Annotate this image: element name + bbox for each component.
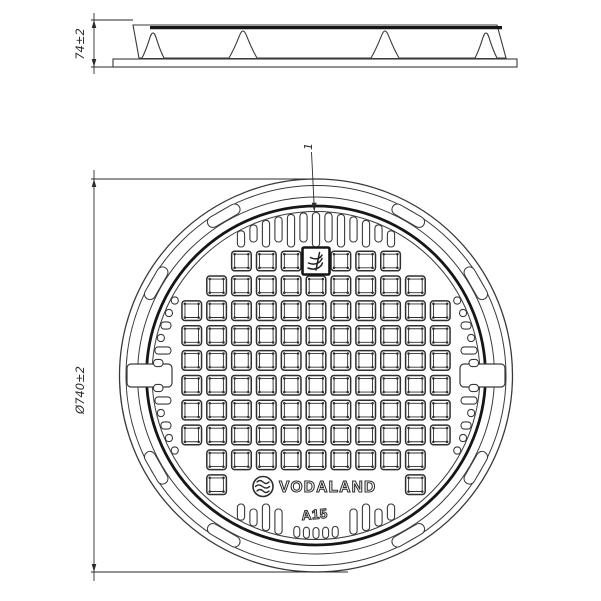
tread-cell [207, 425, 227, 445]
vent-slot-right [461, 347, 477, 354]
tread-cell [207, 450, 227, 470]
tread-cell [306, 326, 326, 346]
tread-cell [331, 425, 351, 445]
vent-slot-top [337, 214, 344, 247]
tread-cell [356, 276, 376, 296]
tread-cell [232, 375, 252, 395]
vent-nub-bottom [332, 526, 338, 537]
tread-cell [331, 375, 351, 395]
tread-cell [182, 400, 202, 420]
tread-cell [406, 326, 426, 346]
vent-slot-left [157, 409, 164, 416]
tread-cell [232, 251, 252, 271]
vent-slot-bottom [362, 504, 369, 531]
tread-cell [281, 375, 301, 395]
tread-cell [257, 375, 277, 395]
tread-cell [281, 301, 301, 321]
tread-cell [207, 375, 227, 395]
pry-notch-right [460, 364, 505, 387]
tread-cell [232, 425, 252, 445]
vent-slot-right [454, 297, 461, 304]
side-elevation-view [113, 25, 517, 67]
tread-cell [406, 375, 426, 395]
tread-cell [430, 351, 450, 371]
tread-cell [406, 425, 426, 445]
tread-cell [381, 375, 401, 395]
vent-slot-top [350, 217, 357, 242]
vent-slot-left [165, 309, 172, 316]
vent-slot-bottom [387, 504, 394, 520]
tread-cell [306, 276, 326, 296]
tread-cell [306, 450, 326, 470]
vent-slot-right [454, 447, 461, 454]
tread-cell [182, 375, 202, 395]
vent-nub-bottom [294, 526, 300, 537]
vent-slot-top [262, 220, 269, 247]
tread-cell [207, 400, 227, 420]
vent-slot-right [468, 334, 475, 341]
tread-cell [257, 301, 277, 321]
vent-slot-top [300, 213, 307, 242]
tread-cell [207, 276, 227, 296]
callout-1-label: 1 [302, 143, 315, 150]
tread-cell [257, 400, 277, 420]
tread-cell [406, 301, 426, 321]
tread-cell [281, 400, 301, 420]
vent-slot-bottom [237, 504, 244, 520]
vent-slot-left [155, 397, 171, 404]
tread-cell [207, 301, 227, 321]
vent-slot-left [155, 347, 171, 354]
tread-cell [331, 400, 351, 420]
tread-cell [257, 326, 277, 346]
tread-cell [207, 351, 227, 371]
tread-cell [207, 475, 227, 495]
vent-slot-left [171, 447, 178, 454]
tread-cell [306, 301, 326, 321]
tread-cell [356, 375, 376, 395]
tread-cell [430, 400, 450, 420]
tread-cell [257, 251, 277, 271]
tread-cell [306, 375, 326, 395]
tread-cell [331, 351, 351, 371]
vent-slot-bottom [350, 509, 357, 534]
vent-slot-top [250, 225, 257, 242]
tread-cell [331, 301, 351, 321]
frame-profile [113, 25, 517, 67]
tread-cell [430, 375, 450, 395]
vent-slot-right [469, 384, 479, 391]
tread-cell [232, 326, 252, 346]
certification-emblem [303, 248, 330, 275]
tread-cell [331, 276, 351, 296]
tread-cell [381, 450, 401, 470]
tread-cell [356, 251, 376, 271]
tread-cell [207, 326, 227, 346]
tread-cell [306, 351, 326, 371]
tread-cell [406, 351, 426, 371]
tread-cell [356, 400, 376, 420]
tread-cell [381, 301, 401, 321]
frame-body [133, 25, 506, 58]
tread-cell [281, 251, 301, 271]
vent-slot-right [461, 397, 477, 404]
tread-cell [406, 276, 426, 296]
frame-flange [113, 59, 517, 67]
vodaland-logo-icon [253, 477, 273, 497]
vent-nub-bottom [323, 527, 329, 538]
vent-slot-right [460, 434, 467, 441]
tread-cell [406, 475, 426, 495]
tread-cell [356, 351, 376, 371]
tread-cell [356, 326, 376, 346]
vent-slot-top [275, 217, 282, 242]
vent-slot-top [312, 213, 319, 248]
vent-slot-right [460, 309, 467, 316]
vent-slot-left [153, 384, 163, 391]
tread-cell [306, 425, 326, 445]
tread-cell [406, 400, 426, 420]
tread-cell [381, 326, 401, 346]
tread-cell [232, 276, 252, 296]
tread-cell [232, 450, 252, 470]
callout-1: 1 [302, 143, 317, 212]
height-dimension-label: 74±2 [73, 28, 87, 60]
tread-cell [182, 301, 202, 321]
vent-nub-bottom [303, 527, 309, 538]
pry-notch-left [127, 364, 172, 387]
vent-slot-top [287, 214, 294, 247]
tread-cell [381, 251, 401, 271]
tread-cell [281, 450, 301, 470]
vent-slot-top [362, 220, 369, 247]
load-class-label: A15 [301, 506, 328, 523]
tread-cell [281, 276, 301, 296]
vent-slot-left [165, 434, 172, 441]
vent-nub-bottom [313, 528, 319, 539]
tread-cell [182, 326, 202, 346]
tread-cell [430, 425, 450, 445]
tread-cell [331, 326, 351, 346]
vent-slot-top [387, 231, 394, 247]
vent-slot-top [325, 213, 332, 242]
tread-cell [257, 450, 277, 470]
vent-slot-left [153, 359, 163, 366]
tread-cell [381, 276, 401, 296]
vent-slot-left [157, 334, 164, 341]
vent-slot-left [161, 422, 171, 429]
tread-cell [232, 400, 252, 420]
tread-grid [182, 251, 450, 494]
vent-slot-bottom [375, 509, 382, 526]
tread-cell [331, 450, 351, 470]
tread-cell [281, 351, 301, 371]
vent-slot-right [469, 359, 479, 366]
tread-cell [356, 301, 376, 321]
vent-slot-left [171, 297, 178, 304]
tread-cell [430, 301, 450, 321]
vent-slot-right [461, 322, 471, 329]
tread-cell [381, 400, 401, 420]
vent-slot-top [237, 231, 244, 247]
manhole-cover-technical-drawing: 74±2 Ø740±2 1 VODALAND A15 [0, 0, 601, 601]
cover-markings: VODALAND A15 [279, 479, 376, 523]
tread-cell [406, 450, 426, 470]
vent-slot-bottom [262, 504, 269, 531]
brand-label: VODALAND [279, 479, 376, 496]
tread-cell [257, 425, 277, 445]
tread-cell [281, 425, 301, 445]
diameter-dimension-label: Ø740±2 [73, 366, 87, 415]
tread-cell [257, 351, 277, 371]
vent-slot-right [461, 422, 471, 429]
vent-slot-left [161, 322, 171, 329]
tread-cell [331, 251, 351, 271]
tread-cell [232, 301, 252, 321]
tread-cell [257, 276, 277, 296]
tread-cell [182, 425, 202, 445]
vent-slot-bottom [250, 509, 257, 526]
tread-cell [381, 425, 401, 445]
tread-cell [356, 425, 376, 445]
tread-cell [430, 326, 450, 346]
tread-cell [182, 351, 202, 371]
vent-slot-right [468, 409, 475, 416]
vent-slot-top [375, 225, 382, 242]
tread-cell [281, 326, 301, 346]
tread-cell [356, 450, 376, 470]
tread-cell [381, 351, 401, 371]
vent-slot-bottom [275, 509, 282, 534]
tread-cell [232, 351, 252, 371]
drawing-svg: 74±2 Ø740±2 1 VODALAND A15 [0, 0, 601, 601]
tread-cell [306, 400, 326, 420]
